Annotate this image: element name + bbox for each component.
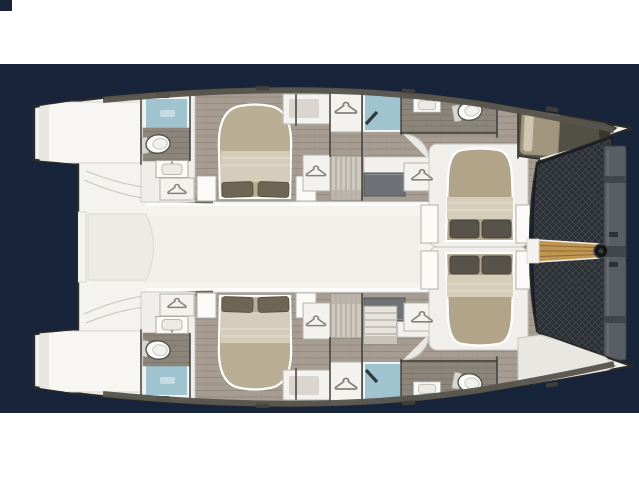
top-white-band: [0, 0, 639, 64]
crossbeam-segment: [604, 176, 626, 183]
crossbeam-segment: [604, 316, 626, 323]
bottom-hull-stairs: [364, 306, 397, 344]
aft-bathroom: [140, 91, 195, 202]
pillow: [482, 220, 511, 238]
bed-blanket: [221, 151, 290, 182]
saloon: [77, 212, 420, 282]
companionway-stairs: [331, 156, 362, 200]
hatch: [256, 404, 269, 409]
hatch: [402, 400, 415, 405]
cleat: [609, 232, 618, 237]
pillow: [450, 220, 479, 238]
floorplan-svg: [0, 0, 639, 479]
pillow: [222, 181, 254, 197]
bottom-white-band: [0, 413, 639, 479]
forward-cabin: [421, 144, 530, 247]
bowsprit: [538, 240, 608, 262]
bowsprit-base: [527, 239, 539, 263]
nightstand: [516, 205, 530, 243]
nightstand: [197, 176, 216, 201]
counter: [364, 173, 405, 196]
cabinet-top: [289, 99, 319, 118]
bed-blanket: [447, 197, 513, 219]
hatch: [402, 89, 415, 94]
pillow: [258, 181, 290, 197]
cleat: [609, 262, 618, 267]
saloon-settee: [88, 214, 154, 280]
nightstand: [421, 205, 438, 243]
shower-drain: [160, 110, 175, 117]
cockpit-step: [77, 212, 86, 282]
corner-notch: [0, 0, 12, 11]
hatch: [256, 86, 269, 91]
bathroom-closet: [160, 178, 194, 200]
catamaran-floorplan-image: [0, 0, 639, 479]
